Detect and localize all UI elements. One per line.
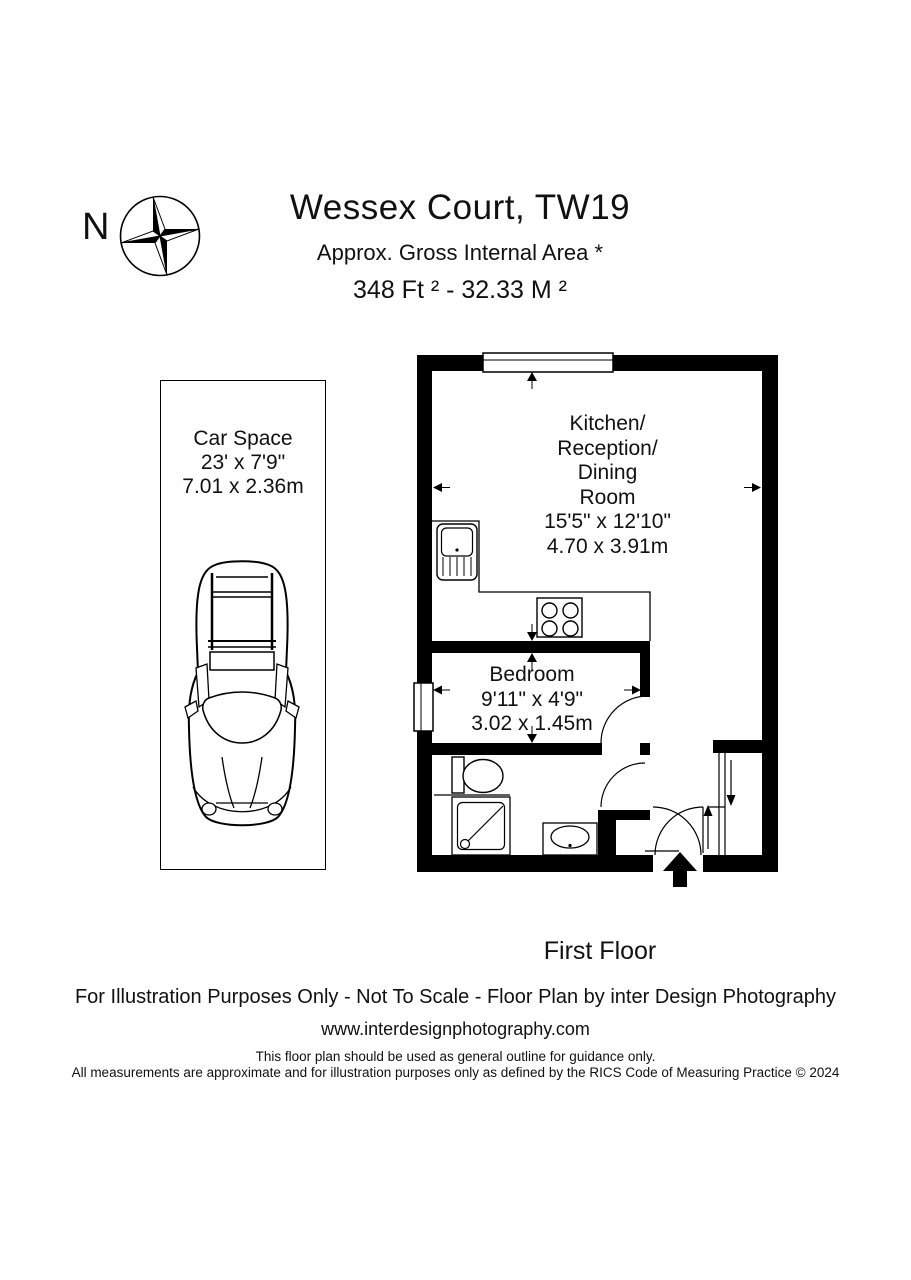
website-link: www.interdesignphotography.com xyxy=(0,1019,911,1040)
illustration-disclaimer-line: For Illustration Purposes Only - Not To … xyxy=(0,986,911,1009)
entrance-arrow-icon xyxy=(663,852,697,887)
floorplan-page: N Wessex Court, TW19 Approx. Gross Inter… xyxy=(0,0,911,1280)
hob-icon xyxy=(537,598,582,637)
floor-name-label: First Floor xyxy=(410,937,790,966)
gross-internal-area: 348 Ft ² - 32.33 M ² xyxy=(60,276,860,305)
basin-icon xyxy=(543,823,597,855)
car-top-view-icon xyxy=(183,558,303,836)
toilet-icon xyxy=(434,757,510,795)
car-space-label: Car Space 23' x 7'9" 7.01 x 2.36m xyxy=(160,427,326,499)
shower-icon xyxy=(452,797,510,855)
sink-unit-icon xyxy=(437,524,477,580)
bedroom-label: Bedroom 9'11" x 4'9" 3.02 x 1.45m xyxy=(432,663,632,737)
kitchen-reception-dining-label: Kitchen/ Reception/ Dining Room 15'5" x … xyxy=(480,412,735,559)
page-title: Wessex Court, TW19 xyxy=(60,188,860,228)
stairs-icon xyxy=(704,753,736,855)
rics-disclaimer: This floor plan should be used as genera… xyxy=(0,1049,911,1080)
page-subtitle: Approx. Gross Internal Area * xyxy=(60,240,860,266)
